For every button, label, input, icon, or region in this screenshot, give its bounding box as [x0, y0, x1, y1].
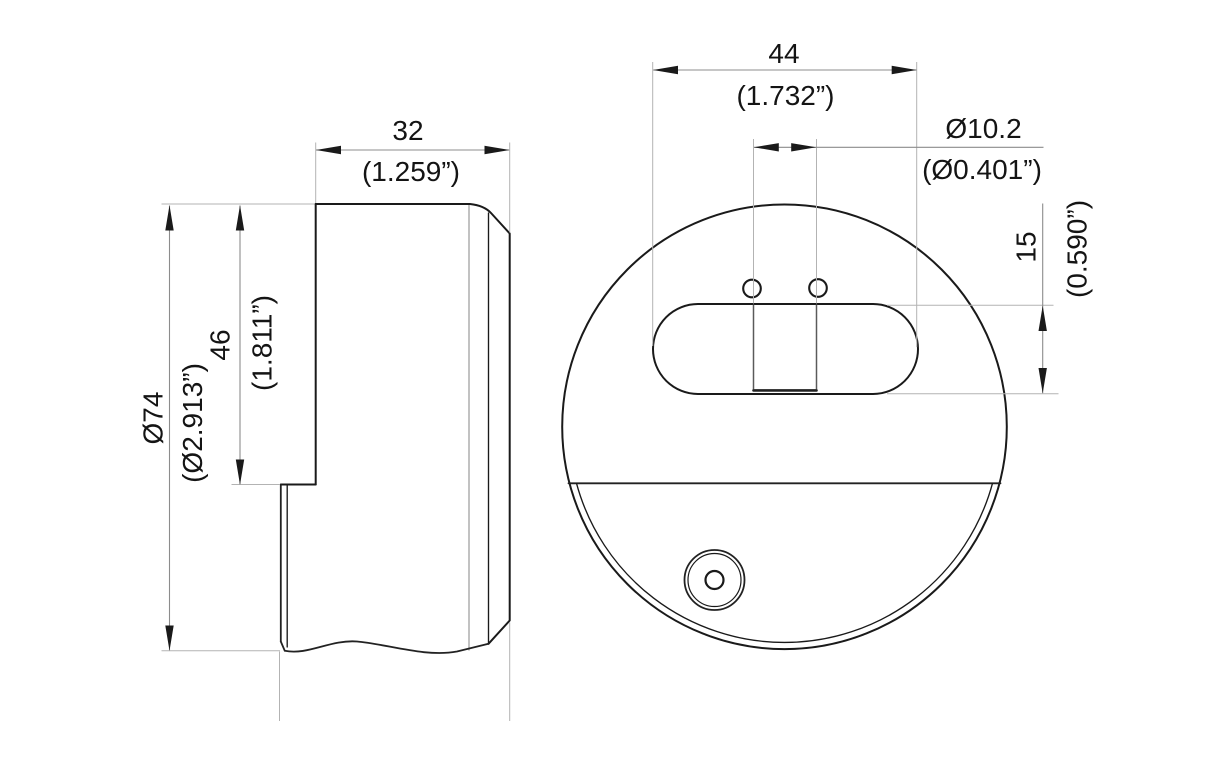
dim-15-inches: (0.590”)	[1062, 200, 1093, 298]
front-view-outer-circle	[562, 204, 1007, 649]
dim-10-2-inches: (Ø0.401”)	[922, 154, 1042, 185]
front-view-pin-hole-left	[743, 280, 761, 298]
arrowhead-up	[1039, 306, 1047, 331]
dim-44-inches: (1.732”)	[736, 80, 834, 111]
technical-drawing-canvas: 32 (1.259”) Ø74 (Ø2.913”) 46 (1.811”)	[0, 0, 1223, 769]
side-view-break-line	[281, 641, 489, 653]
arrowhead-left	[316, 146, 341, 154]
arrowhead-up	[165, 205, 173, 230]
front-view-slot	[653, 304, 918, 394]
arrowhead-right	[892, 66, 917, 74]
arrowhead-down	[236, 460, 244, 485]
front-view-pin-hole-right	[809, 279, 827, 297]
dim-32-inches: (1.259”)	[362, 156, 460, 187]
front-view-counterbore-inner	[688, 554, 741, 607]
front-view-inner-arc	[577, 483, 993, 642]
dim-10-2-value: Ø10.2	[945, 113, 1021, 144]
front-view-screw-hole	[706, 571, 724, 589]
dim-32-value: 32	[392, 115, 423, 146]
front-view-dimensions: 44 (1.732”) Ø10.2 (Ø0.401”) 15 (0.590”)	[653, 38, 1093, 394]
dim-44-value: 44	[768, 38, 799, 69]
arrowhead-down	[165, 626, 173, 651]
front-view	[562, 204, 1007, 649]
front-view-counterbore-outer	[685, 550, 745, 610]
arrowhead-right	[791, 143, 816, 151]
dim-74-value: Ø74	[138, 392, 169, 445]
dim-46-inches: (1.811”)	[247, 295, 278, 391]
dim-46-value: 46	[205, 329, 236, 360]
arrowhead-left	[754, 143, 779, 151]
dimension-drawing: 32 (1.259”) Ø74 (Ø2.913”) 46 (1.811”)	[0, 0, 1223, 769]
side-view	[280, 204, 510, 721]
side-view-dimensions: 32 (1.259”) Ø74 (Ø2.913”) 46 (1.811”)	[138, 115, 510, 651]
dim-15-value: 15	[1011, 231, 1042, 262]
arrowhead-left	[653, 66, 678, 74]
dim-74-inches: (Ø2.913”)	[177, 363, 208, 483]
arrowhead-down	[1039, 368, 1047, 393]
arrowhead-right	[485, 146, 510, 154]
side-view-outline	[316, 204, 510, 644]
arrowhead-up	[236, 205, 244, 230]
